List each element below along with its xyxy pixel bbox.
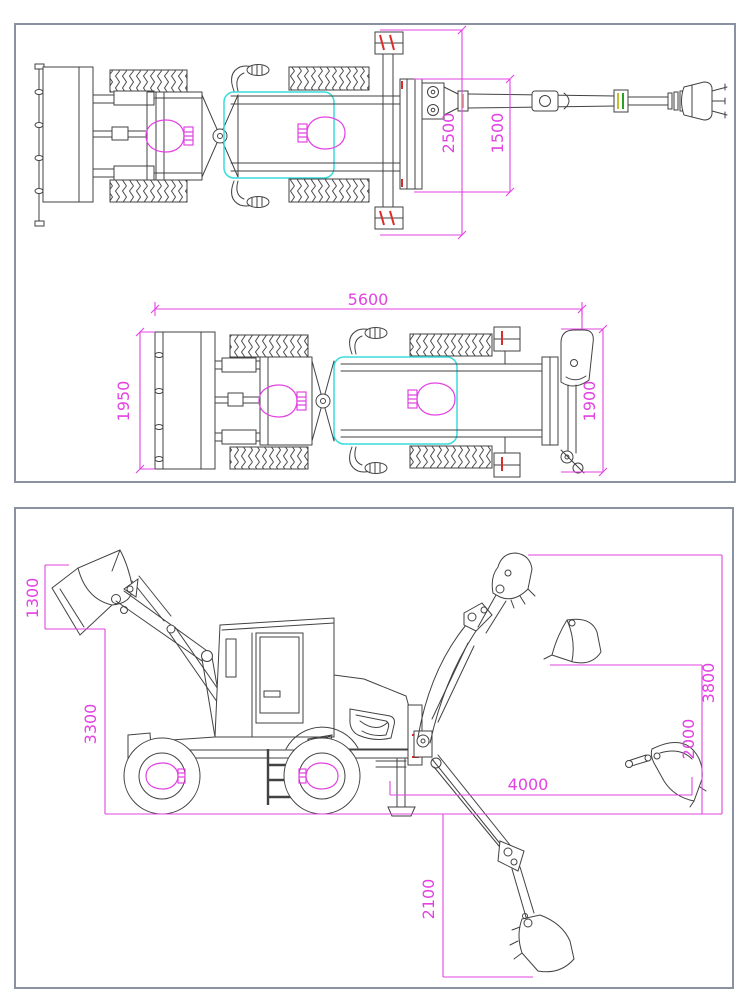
rear-axle-symbol — [298, 117, 345, 149]
drawing-sheet: 2500 1500 5600 — [0, 0, 750, 996]
tire-front-right-2 — [230, 447, 308, 469]
articulation-joint-2 — [312, 361, 334, 441]
dimension-digging-depth: 2100 — [419, 814, 533, 977]
tire-front-left-2 — [230, 335, 308, 357]
tire-front-right — [110, 180, 187, 202]
dimension-label-2100: 2100 — [419, 879, 438, 920]
stabilizers — [375, 32, 403, 229]
rear-body-outline-2 — [334, 357, 457, 444]
tire-rear-left — [289, 67, 369, 90]
dimension-label-1500: 1500 — [488, 113, 507, 154]
loader-arm — [116, 576, 229, 737]
front-axle-symbol-2 — [259, 385, 306, 417]
front-wheel — [124, 738, 200, 814]
tire-rear-right — [289, 179, 369, 202]
loader-bucket-raised — [52, 550, 132, 635]
backhoe-raised — [418, 553, 535, 743]
rear-wheel — [284, 738, 360, 814]
dimension-reach: 4000 — [390, 775, 692, 795]
dimension-blade-width: 1950 — [114, 328, 155, 473]
tire-rear-right-2 — [410, 446, 492, 468]
fender-curl-bottom — [232, 181, 269, 208]
backhoe-extended — [422, 82, 727, 120]
dimension-label-3300: 3300 — [81, 704, 100, 745]
side-view-drawing: 1300 3300 3800 2000 4000 2100 — [23, 550, 722, 977]
articulation-joint — [202, 95, 238, 177]
dimension-label-1950: 1950 — [114, 381, 133, 422]
stabilizer-pads-2 — [494, 327, 520, 477]
front-axle-symbol — [146, 120, 193, 152]
backhoe-digging — [431, 755, 574, 972]
side-view-panel: 1300 3300 3800 2000 4000 2100 — [14, 507, 734, 989]
dimension-label-4000: 4000 — [508, 775, 549, 794]
tire-rear-left-2 — [410, 334, 492, 356]
front-frame — [147, 92, 202, 180]
side-view-svg: 1300 3300 3800 2000 4000 2100 — [16, 509, 732, 987]
frame-rails-2 — [341, 364, 542, 437]
rear-axle-symbol-2 — [408, 383, 455, 415]
dimension-label-1300: 1300 — [23, 578, 42, 619]
frame-rails — [231, 96, 400, 171]
dimension-label-2500: 2500 — [439, 113, 458, 154]
cab — [215, 618, 334, 737]
front-blade-2 — [155, 332, 215, 469]
blade-arms-2 — [215, 358, 260, 444]
top-view-transport: 2500 1500 — [35, 26, 727, 239]
tire-front-left — [110, 70, 187, 92]
dimension-loader-dump-height: 3300 — [75, 629, 105, 814]
dimension-label-2000: 2000 — [679, 719, 698, 760]
top-views-panel: 2500 1500 5600 — [14, 23, 736, 483]
top-views-svg: 2500 1500 5600 — [16, 25, 734, 481]
dimension-label-1900: 1900 — [580, 381, 599, 422]
fender-curl-top — [232, 65, 269, 92]
fender-curl-bottom-2 — [350, 447, 387, 474]
rear-body-outline — [224, 92, 334, 178]
fender-curl-top-2 — [350, 328, 387, 355]
top-view-travel: 5600 — [114, 290, 607, 477]
dimension-label-5600: 5600 — [348, 290, 389, 309]
rear-plate — [400, 79, 422, 189]
bucket-loading-height — [544, 619, 601, 663]
front-blade — [35, 64, 93, 226]
